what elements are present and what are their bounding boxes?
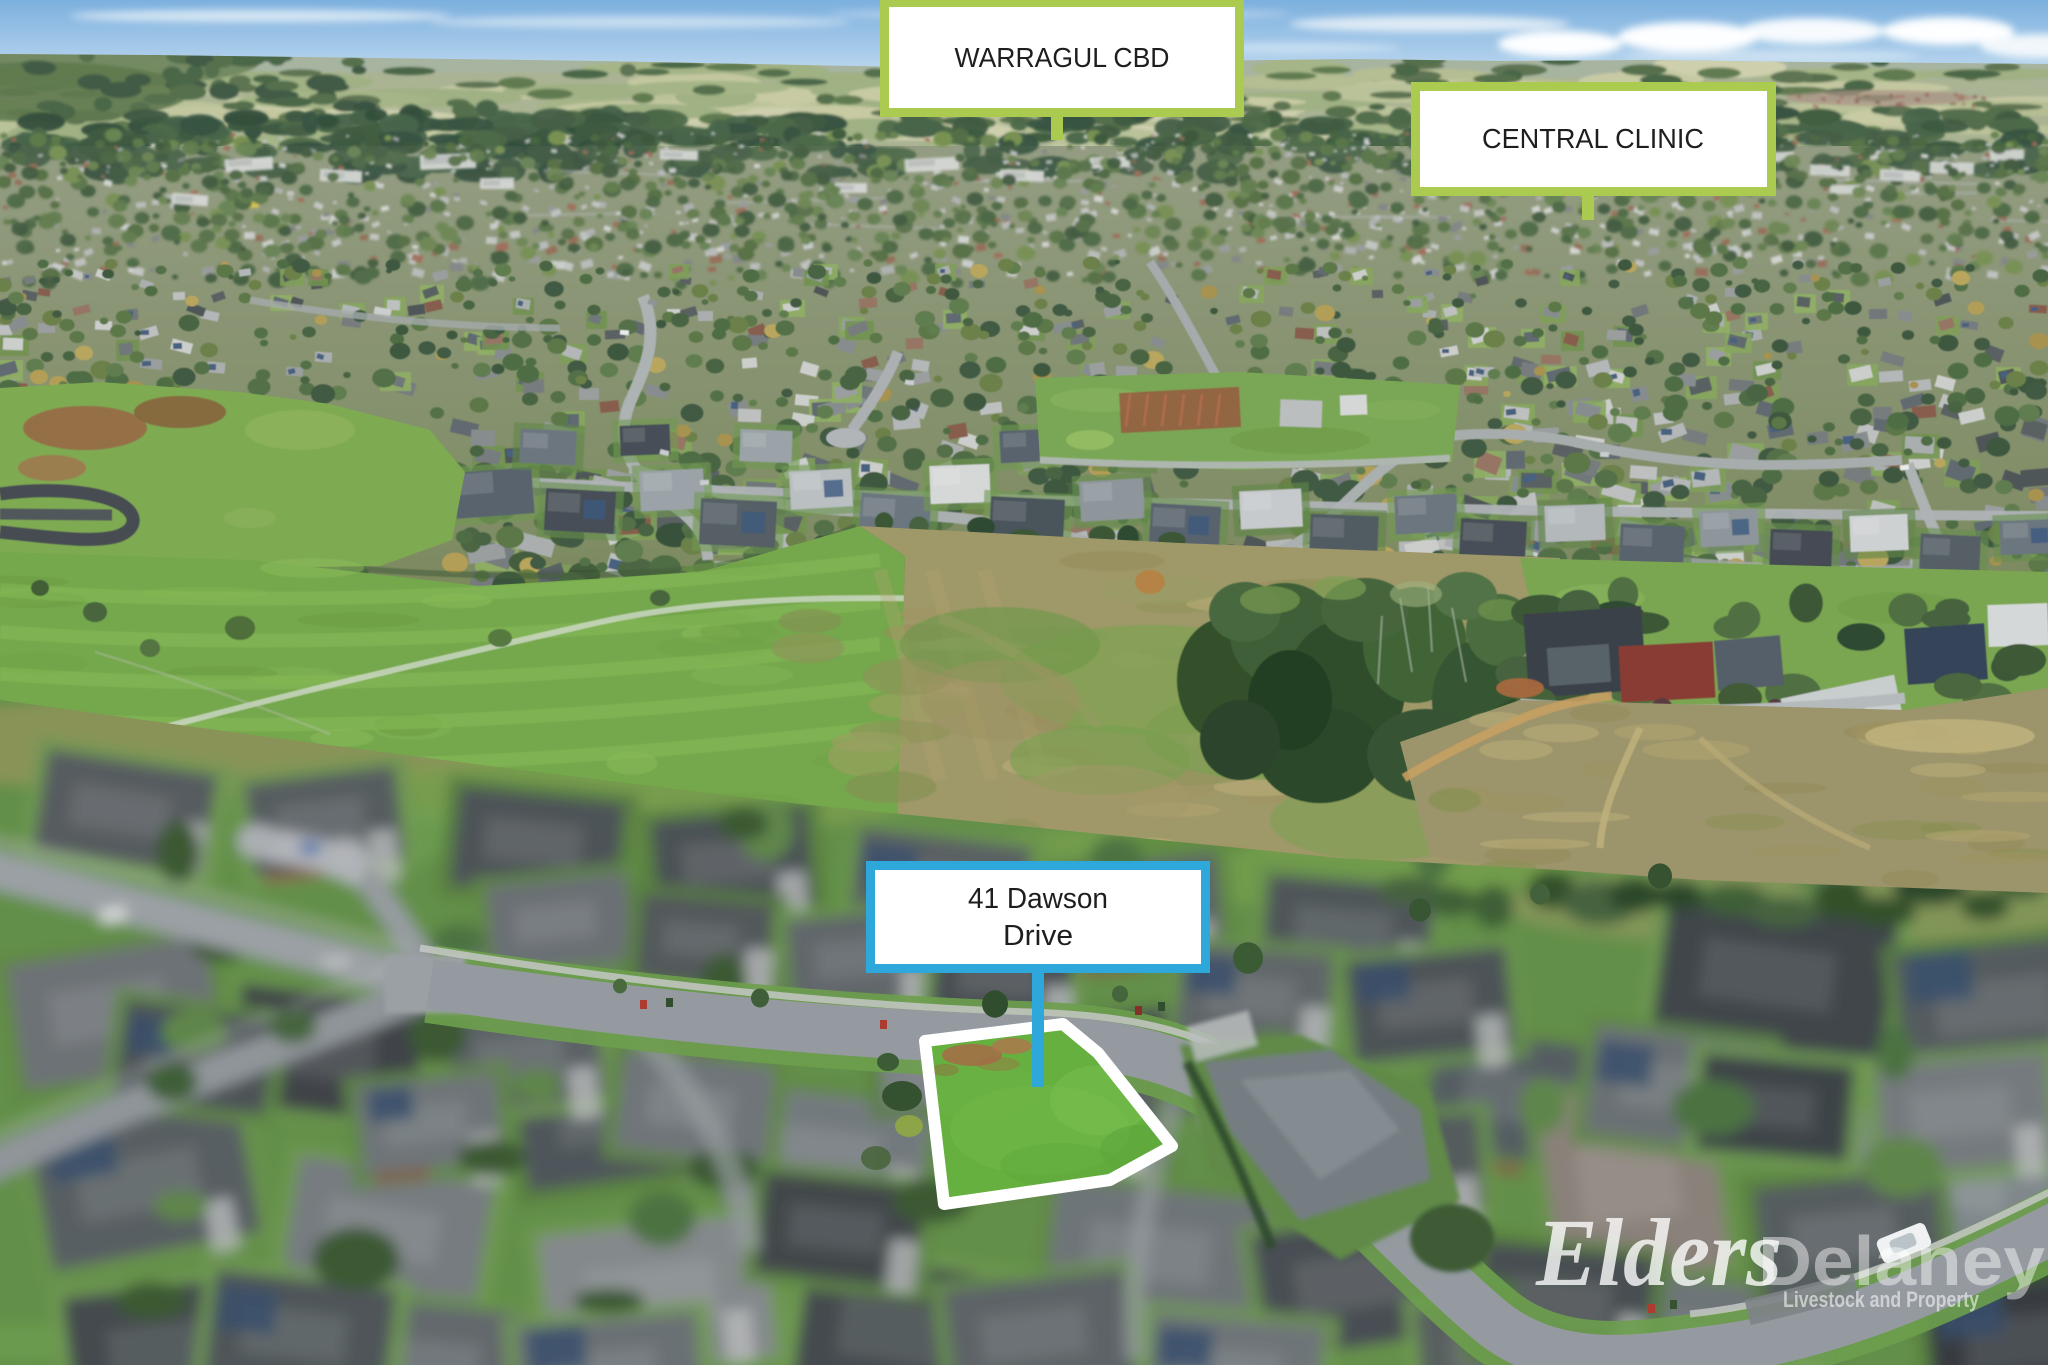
- svg-text:CENTRAL CLINIC: CENTRAL CLINIC: [1482, 123, 1704, 154]
- svg-text:41 Dawson: 41 Dawson: [968, 883, 1108, 915]
- svg-text:Drive: Drive: [1003, 920, 1073, 952]
- svg-text:Livestock and Property: Livestock and Property: [1783, 1287, 1980, 1312]
- svg-text:WARRAGUL CBD: WARRAGUL CBD: [955, 42, 1170, 73]
- svg-text:Elders: Elders: [1535, 1199, 1782, 1306]
